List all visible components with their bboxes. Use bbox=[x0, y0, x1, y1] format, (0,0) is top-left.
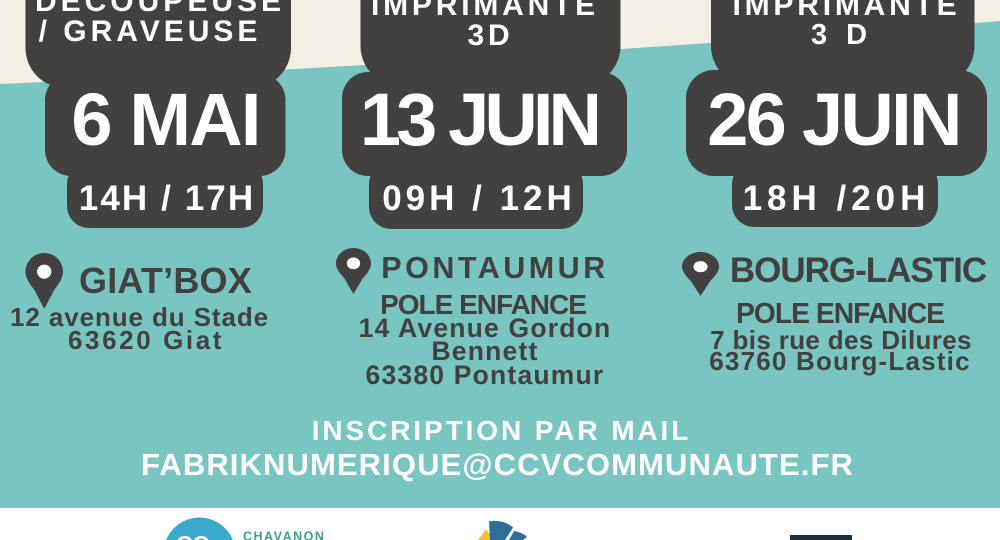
svg-text:CC: CC bbox=[176, 531, 209, 540]
svg-text:CHAVANON: CHAVANON bbox=[243, 530, 325, 540]
